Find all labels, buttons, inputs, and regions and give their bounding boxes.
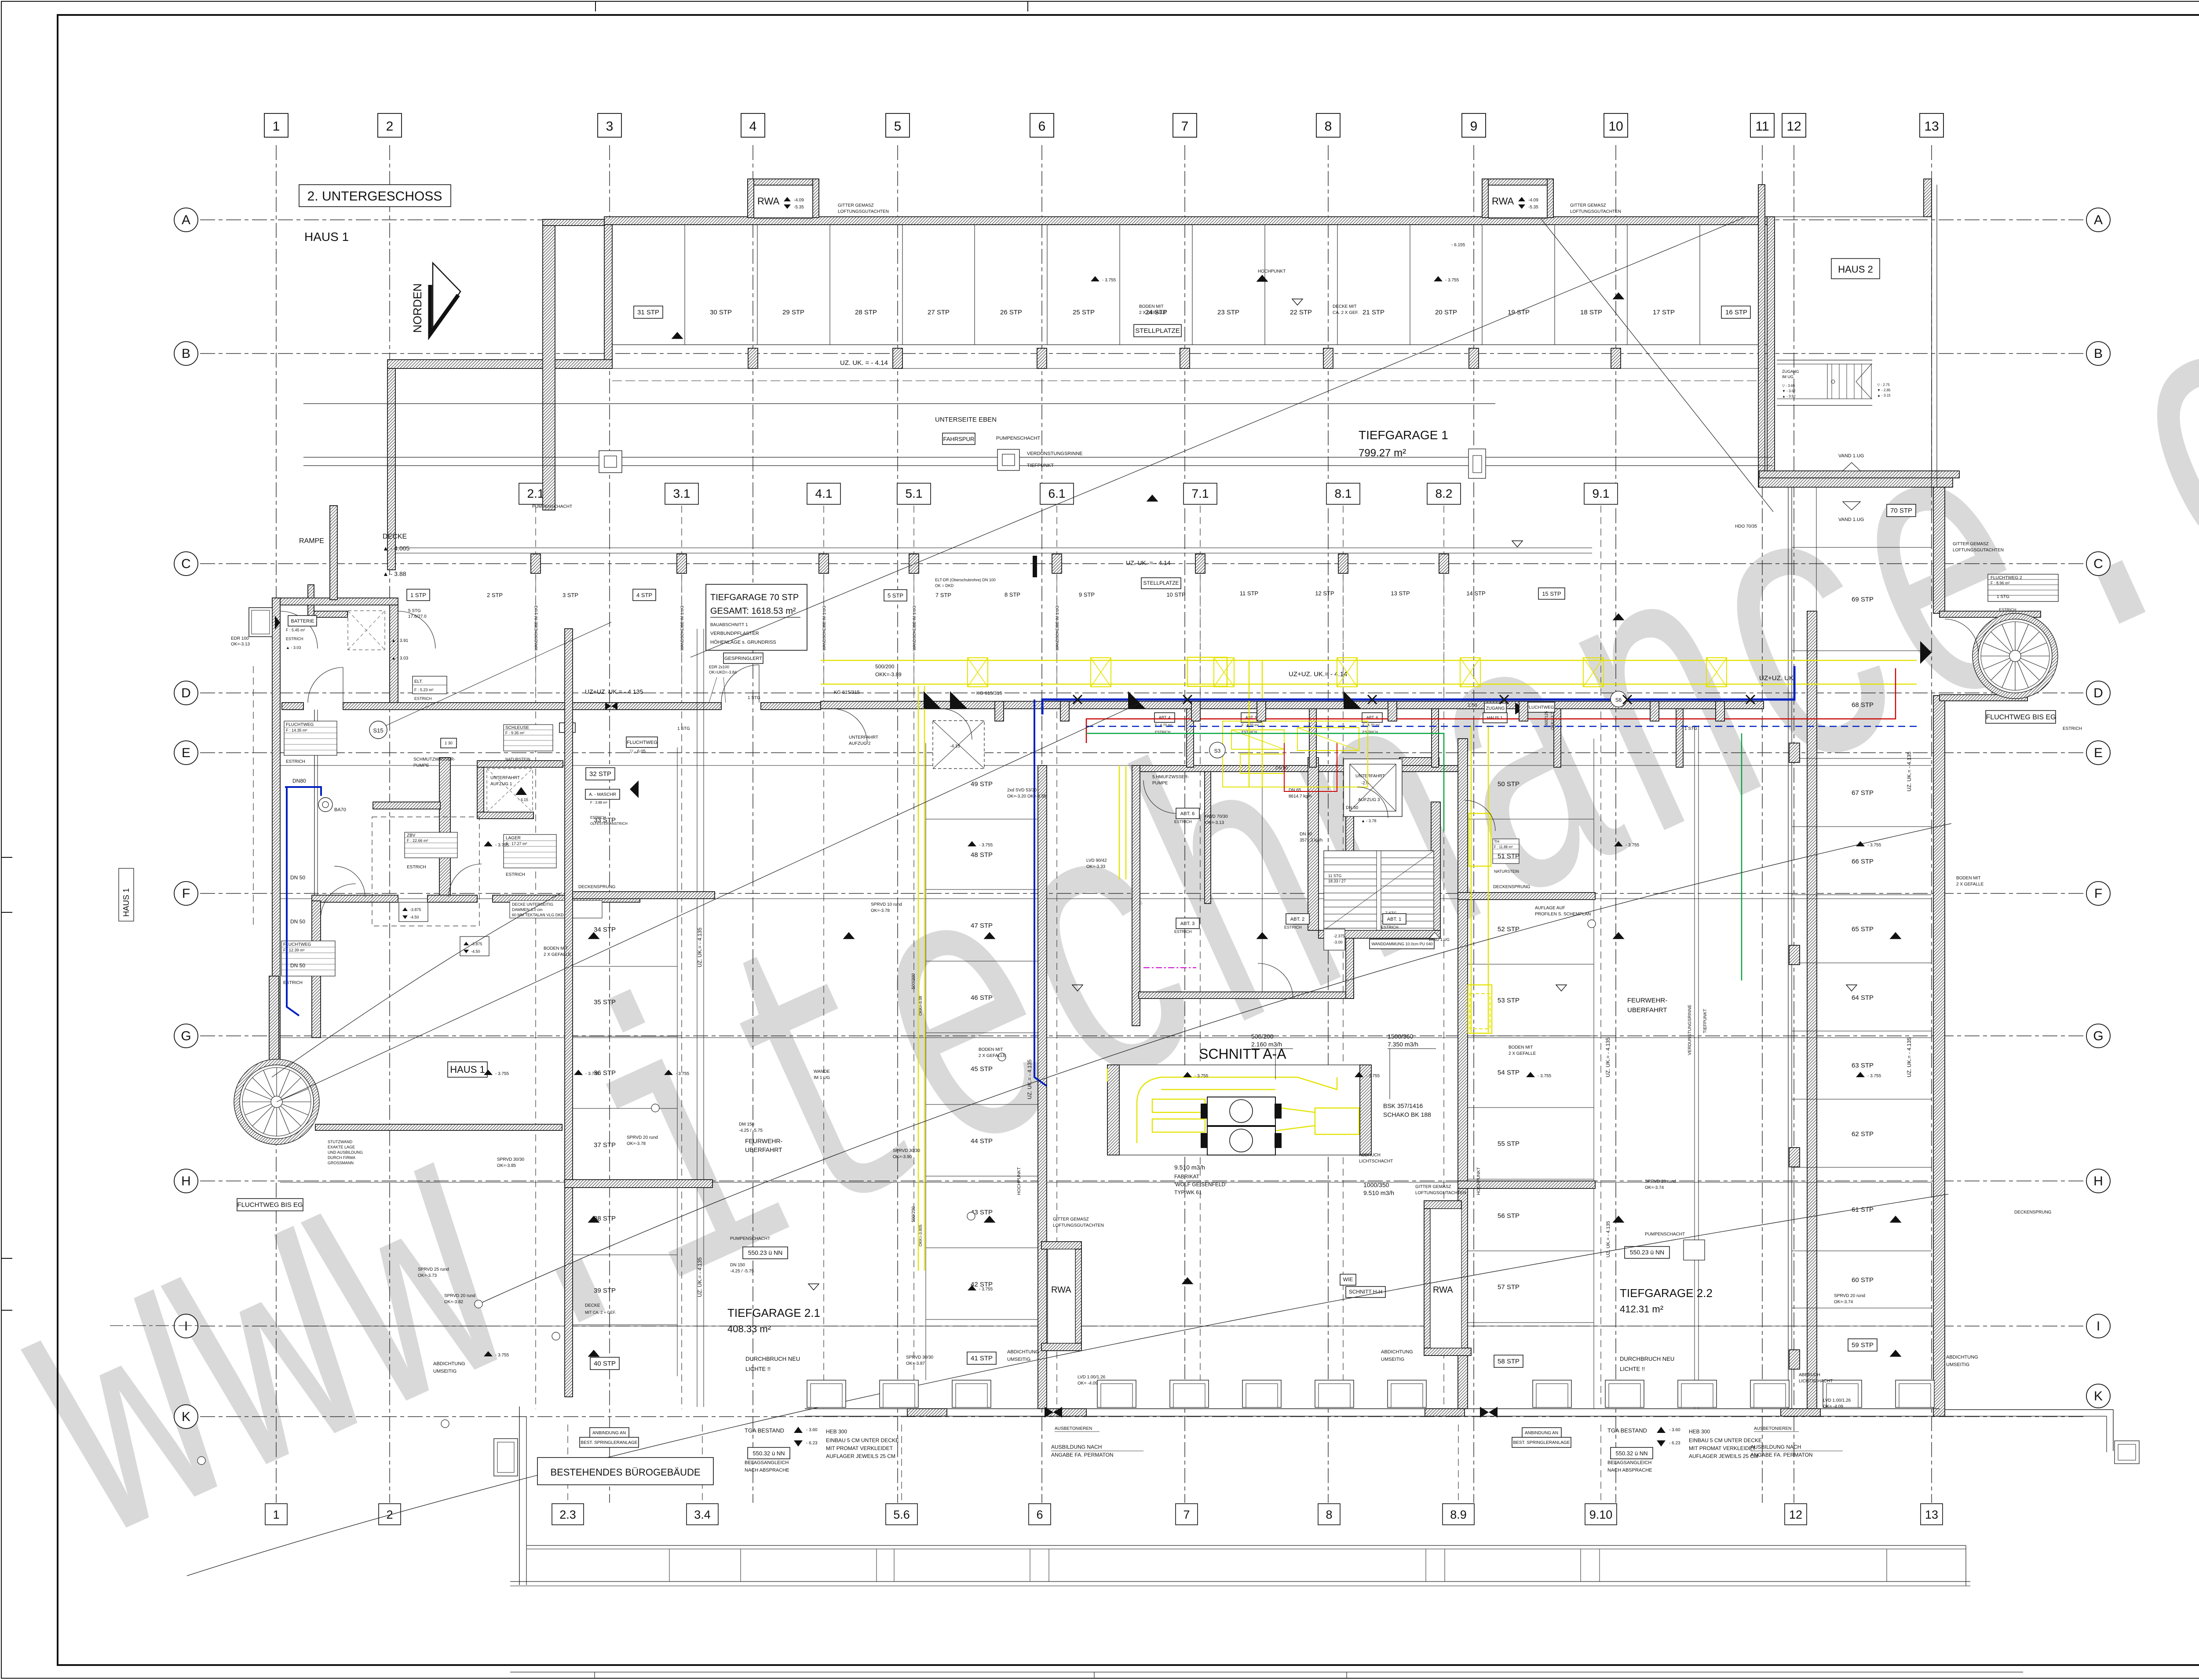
svg-text:OLFESTER ANSTRICH: OLFESTER ANSTRICH: [590, 822, 628, 826]
svg-text:500/200: 500/200: [911, 973, 916, 989]
svg-text:60 MM TEKTALAN VLG DKD: 60 MM TEKTALAN VLG DKD: [512, 913, 564, 917]
svg-text:35 STP: 35 STP: [594, 999, 616, 1006]
svg-text:8 STP: 8 STP: [1005, 591, 1020, 598]
svg-text:A. - MASCHR: A. - MASCHR: [589, 792, 616, 797]
svg-text:500/200: 500/200: [1251, 1033, 1274, 1040]
svg-text:FEURWEHR-: FEURWEHR-: [1627, 997, 1667, 1004]
svg-text:55 STP: 55 STP: [1498, 1140, 1520, 1148]
svg-text:NACH ABSPRACHE: NACH ABSPRACHE: [745, 1468, 789, 1473]
svg-text:HAUS 2: HAUS 2: [1838, 264, 1873, 275]
svg-text:BODEN MIT: BODEN MIT: [544, 946, 568, 951]
svg-text:550.32 ü NN: 550.32 ü NN: [1616, 1450, 1648, 1457]
svg-text:2.160 m3/h: 2.160 m3/h: [1251, 1041, 1282, 1048]
svg-text:3.1: 3.1: [673, 487, 690, 500]
svg-text:CA. 2 X GEF.: CA. 2 X GEF.: [1333, 310, 1359, 315]
svg-text:DECKE UNTERSEITIG: DECKE UNTERSEITIG: [512, 902, 553, 907]
svg-text:PUMPENSCHACHT: PUMPENSCHACHT: [1645, 1232, 1685, 1237]
svg-text:DURCHBRUCH NEU: DURCHBRUCH NEU: [745, 1356, 800, 1362]
svg-text:C: C: [2093, 557, 2103, 571]
svg-text:412.31 m²: 412.31 m²: [1620, 1304, 1663, 1315]
svg-text:1:50: 1:50: [1468, 703, 1477, 708]
svg-text:▲ - 3.03: ▲ - 3.03: [286, 645, 301, 650]
svg-text:B: B: [2094, 346, 2103, 361]
svg-text:58 STP: 58 STP: [1498, 1358, 1520, 1365]
svg-text:A: A: [2094, 213, 2103, 227]
svg-text:-4.25 / -5.75: -4.25 / -5.75: [730, 1269, 754, 1274]
svg-text:SCHLEUSE: SCHLEUSE: [505, 725, 529, 730]
svg-text:SCHNITT H-H: SCHNITT H-H: [1349, 1289, 1382, 1295]
svg-text:F : 8.96 m²: F : 8.96 m²: [1991, 581, 2010, 585]
svg-text:- 3.755: - 3.755: [1867, 843, 1881, 848]
svg-text:WANDSCHEIBE IM 1.UG: WANDSCHEIBE IM 1.UG: [912, 605, 917, 651]
svg-text:11: 11: [1755, 119, 1769, 134]
svg-text:F : 5.45 m²: F : 5.45 m²: [286, 628, 305, 632]
svg-text:4.1: 4.1: [815, 487, 833, 500]
svg-text:F : 17.27 m²: F : 17.27 m²: [506, 842, 527, 846]
svg-text:PUMPENSCHACHT: PUMPENSCHACHT: [730, 1236, 770, 1241]
svg-text:DN 50: DN 50: [1300, 832, 1312, 837]
svg-text:12 STP: 12 STP: [1315, 590, 1334, 597]
svg-text:DURCH FIRMA: DURCH FIRMA: [328, 1155, 355, 1160]
svg-text:DN 65: DN 65: [1289, 788, 1301, 793]
svg-text:44 STP: 44 STP: [971, 1137, 993, 1145]
svg-text:MIT PROMAT VERKLEIDET: MIT PROMAT VERKLEIDET: [1689, 1445, 1756, 1451]
svg-text:- 3.755: - 3.755: [1867, 1074, 1881, 1079]
svg-text:7: 7: [1181, 119, 1189, 134]
svg-text:9.1: 9.1: [1593, 487, 1610, 500]
svg-text:ANGABE FA. PERMATON: ANGABE FA. PERMATON: [1051, 1452, 1114, 1458]
svg-text:- 3.755: - 3.755: [979, 1287, 993, 1292]
svg-text:39 STP: 39 STP: [594, 1287, 616, 1294]
svg-text:6.1: 6.1: [1048, 487, 1066, 500]
svg-text:▲ - 3.92: ▲ - 3.92: [1782, 394, 1796, 398]
svg-text:UNTERFAHRT: UNTERFAHRT: [849, 735, 878, 740]
svg-text:ESTRICH: ESTRICH: [1174, 929, 1192, 934]
svg-text:-2.375: -2.375: [1333, 934, 1345, 938]
svg-text:UZ. UK.= - 4.135: UZ. UK.= - 4.135: [1026, 1059, 1033, 1099]
svg-text:RAMPE: RAMPE: [299, 537, 324, 545]
svg-text:ESTRICH: ESTRICH: [1284, 925, 1302, 929]
svg-text:1 30: 1 30: [445, 741, 453, 745]
svg-text:64 STP: 64 STP: [1852, 994, 1874, 1002]
svg-text:HAUS 1: HAUS 1: [122, 888, 131, 917]
svg-text:1 STG: 1 STG: [1684, 726, 1697, 731]
svg-text:OKK=-3.38: OKK=-3.38: [918, 996, 923, 1016]
svg-text:UZ. UK.= - 4.135: UZ. UK.= - 4.135: [697, 1257, 703, 1297]
svg-text:LOFTUNGSGUTACHTEN: LOFTUNGSGUTACHTEN: [1415, 1191, 1466, 1195]
svg-text:UNTERSEITE EBEN: UNTERSEITE EBEN: [935, 416, 997, 423]
svg-text:PUMPENSCHACHT: PUMPENSCHACHT: [532, 504, 572, 509]
svg-text:DAMMEN 3.0 cm: DAMMEN 3.0 cm: [512, 907, 543, 912]
svg-text:FLUCHTWEG: FLUCHTWEG: [286, 722, 314, 727]
svg-text:OK=UKD=-3.84: OK=UKD=-3.84: [709, 670, 737, 674]
svg-text:- 3.755: - 3.755: [495, 843, 509, 848]
svg-text:LICHTE !!: LICHTE !!: [1620, 1366, 1645, 1372]
svg-text:OK=-3.87: OK=-3.87: [906, 1361, 925, 1366]
svg-text:LOFTUNGSGUTACHTEN: LOFTUNGSGUTACHTEN: [838, 209, 889, 214]
svg-text:KG 615/315: KG 615/315: [976, 691, 1002, 696]
svg-text:3 STP: 3 STP: [563, 592, 578, 598]
svg-text:ESTRICH: ESTRICH: [414, 696, 432, 701]
svg-text:8.1: 8.1: [1335, 487, 1352, 500]
svg-text:DN80: DN80: [292, 778, 306, 784]
svg-text:B: B: [182, 346, 190, 361]
svg-text:OK=-3.78: OK=-3.78: [627, 1141, 646, 1146]
svg-text:DN 50: DN 50: [290, 918, 305, 925]
svg-text:UZ+UZ. UK.= - 4.14: UZ+UZ. UK.= - 4.14: [1289, 671, 1347, 678]
svg-text:SCHMUTZWASSER-: SCHMUTZWASSER-: [413, 757, 455, 762]
svg-text:OK=-3.90: OK=-3.90: [893, 1155, 912, 1159]
svg-text:3: 3: [606, 119, 614, 134]
svg-text:2. UNTERGESCHOSS: 2. UNTERGESCHOSS: [307, 189, 442, 204]
svg-text:FABRIKAT: FABRIKAT: [1174, 1173, 1200, 1180]
svg-text:S3: S3: [1214, 748, 1221, 754]
svg-text:F : 14.35 m²: F : 14.35 m²: [286, 728, 307, 732]
svg-text:21 STP: 21 STP: [1363, 309, 1384, 316]
svg-text:HÖHENLAGE s. GRUNDRISS: HÖHENLAGE s. GRUNDRISS: [710, 640, 776, 645]
svg-text:28 STP: 28 STP: [855, 309, 877, 316]
svg-text:SPRVD 20 rund: SPRVD 20 rund: [444, 1294, 475, 1298]
svg-text:OK = DKD: OK = DKD: [935, 583, 954, 588]
svg-text:- 3.60: - 3.60: [806, 1428, 818, 1432]
svg-text:TYP:WK 61: TYP:WK 61: [1174, 1189, 1202, 1195]
svg-text:8.2: 8.2: [1436, 487, 1453, 500]
svg-text:DECKENSPRUNG: DECKENSPRUNG: [578, 885, 616, 889]
svg-text:F : 9.35 m²: F : 9.35 m²: [505, 731, 525, 735]
svg-text:8.9: 8.9: [1450, 1508, 1467, 1521]
svg-text:▲ - 3.88: ▲ - 3.88: [383, 570, 406, 577]
svg-text:LVD 1.00/1.26: LVD 1.00/1.26: [1078, 1375, 1106, 1380]
svg-text:62 STP: 62 STP: [1852, 1130, 1874, 1138]
svg-text:PUMPE: PUMPE: [1152, 781, 1168, 786]
svg-text:GITTER GEMASZ: GITTER GEMASZ: [1953, 542, 1989, 547]
svg-text:BAUABSCHNITT 1: BAUABSCHNITT 1: [710, 623, 748, 627]
svg-text:PUMPENSCHACHT: PUMPENSCHACHT: [996, 436, 1041, 441]
svg-text:▼ - 2.85: ▼ - 2.85: [1877, 388, 1891, 392]
svg-text:- 3.755: - 3.755: [676, 1071, 690, 1076]
svg-text:-4.09: -4.09: [1528, 198, 1538, 203]
svg-text:EINBAU 5 CM UNTER DECKE: EINBAU 5 CM UNTER DECKE: [1689, 1437, 1762, 1443]
svg-text:20 STP: 20 STP: [1435, 309, 1457, 316]
svg-text:DURCHBRUCH NEU: DURCHBRUCH NEU: [1620, 1356, 1674, 1362]
svg-text:500/200: 500/200: [875, 663, 895, 670]
svg-text:7 STP: 7 STP: [935, 592, 951, 598]
svg-text:LOFTUNGSGUTACHTEN: LOFTUNGSGUTACHTEN: [1053, 1223, 1104, 1228]
svg-text:▽ - 6.05: ▽ - 6.05: [630, 749, 646, 754]
svg-text:5.1: 5.1: [906, 487, 923, 500]
svg-text:BODEN MIT: BODEN MIT: [1139, 304, 1164, 309]
svg-text:5.HMUFZWSSER-: 5.HMUFZWSSER-: [1152, 775, 1189, 780]
svg-text:OK=-3.73: OK=-3.73: [418, 1273, 437, 1278]
svg-text:MIT PROMAT VERKLEIDET: MIT PROMAT VERKLEIDET: [826, 1445, 893, 1451]
svg-text:-3.00: -3.00: [1333, 940, 1343, 944]
svg-text:5 STP: 5 STP: [888, 592, 903, 599]
svg-text:DECKE: DECKE: [383, 533, 407, 540]
svg-text:3.4: 3.4: [694, 1508, 711, 1521]
svg-text:63 STP: 63 STP: [1852, 1062, 1874, 1069]
svg-text:OK= -4.09: OK= -4.09: [1823, 1404, 1843, 1409]
svg-text:ESTRICH: ESTRICH: [407, 865, 426, 870]
svg-text:1: 1: [273, 119, 280, 134]
svg-text:6: 6: [1036, 1508, 1043, 1521]
svg-text:TIEFGARAGE 1: TIEFGARAGE 1: [1359, 428, 1448, 442]
svg-text:RWA: RWA: [1433, 1285, 1453, 1295]
svg-text:H: H: [181, 1174, 191, 1188]
svg-text:SCHAKO BK 188: SCHAKO BK 188: [1383, 1111, 1431, 1118]
svg-text:DN 50: DN 50: [1346, 805, 1359, 810]
svg-text:HEB 300: HEB 300: [826, 1429, 847, 1435]
svg-text:DECKE MIT: DECKE MIT: [1333, 304, 1356, 309]
svg-text:OK=-3.74: OK=-3.74: [1834, 1300, 1853, 1305]
svg-text:▼ - 3.62: ▼ - 3.62: [1782, 389, 1796, 393]
svg-text:▲ - 3.78: ▲ - 3.78: [1361, 819, 1376, 823]
svg-text:LOFTUNGSGUTACHTEN: LOFTUNGSGUTACHTEN: [1570, 209, 1621, 214]
svg-text:WANDSCHEIBE IM 1.UG: WANDSCHEIBE IM 1.UG: [680, 605, 684, 651]
svg-text:BELAGSANGLEICH: BELAGSANGLEICH: [745, 1460, 789, 1465]
svg-text:UMSEITIG: UMSEITIG: [433, 1369, 457, 1374]
svg-text:-4.15: -4.15: [950, 744, 960, 749]
svg-text:BESTEHENDES BÜROGEBÄUDE: BESTEHENDES BÜROGEBÄUDE: [550, 1467, 700, 1478]
svg-text:AUFZUG 3: AUFZUG 3: [1358, 798, 1380, 802]
svg-text:ZUGANG: ZUGANG: [1486, 706, 1505, 711]
svg-text:13 STP: 13 STP: [1391, 590, 1410, 597]
svg-text:ELT.: ELT.: [414, 679, 423, 684]
svg-text:22 STP: 22 STP: [1290, 309, 1312, 316]
svg-text:UBERFAHRT: UBERFAHRT: [1627, 1006, 1667, 1014]
svg-text:AUSBILDUNG NACH: AUSBILDUNG NACH: [1750, 1444, 1801, 1450]
svg-text:UNTERFAHRT: UNTERFAHRT: [1355, 774, 1385, 779]
svg-text:45 STP: 45 STP: [971, 1065, 993, 1073]
svg-text:UZ. UK. = - 4.14: UZ. UK. = - 4.14: [840, 359, 888, 367]
svg-text:MIT CA. 2 × GEF.: MIT CA. 2 × GEF.: [585, 1310, 616, 1315]
svg-text:-3.875: -3.875: [410, 907, 421, 912]
svg-text:9 STP: 9 STP: [1079, 591, 1095, 598]
svg-text:▲ - 3.03: ▲ - 3.03: [391, 656, 409, 661]
svg-text:FLUCHTWEG 2: FLUCHTWEG 2: [1991, 576, 2022, 580]
svg-text:- 3.755: - 3.755: [495, 1353, 509, 1358]
svg-text:799.27 m²: 799.27 m²: [1359, 447, 1406, 459]
svg-text:GROSSMANN: GROSSMANN: [328, 1161, 354, 1165]
svg-text:3571.3 kg/h: 3571.3 kg/h: [1300, 838, 1322, 843]
svg-text:GITTER GEMASZ: GITTER GEMASZ: [1053, 1217, 1089, 1222]
svg-text:1: 1: [273, 1508, 279, 1521]
svg-text:- 6.23: - 6.23: [1669, 1441, 1680, 1446]
svg-text:AUSBETONIEREN: AUSBETONIEREN: [1055, 1426, 1092, 1431]
svg-text:-4.25 / -5.75: -4.25 / -5.75: [739, 1128, 763, 1133]
svg-text:G: G: [181, 1029, 191, 1043]
svg-text:F : 11.88 m²: F : 11.88 m²: [1494, 845, 1513, 849]
svg-text:ABDICHTUNG: ABDICHTUNG: [1007, 1349, 1039, 1355]
svg-text:BODEN MIT: BODEN MIT: [979, 1047, 1003, 1052]
svg-text:13: 13: [1924, 119, 1939, 134]
svg-text:EDR 2x100: EDR 2x100: [709, 665, 729, 669]
svg-text:UZ. UK.= - 4.135: UZ. UK.= - 4.135: [1605, 1037, 1611, 1077]
svg-text:HOCHPUNKT: HOCHPUNKT: [1476, 1167, 1481, 1195]
svg-text:UZ. UK.= - 4.135: UZ. UK.= - 4.135: [697, 927, 703, 967]
svg-text:ABDICHTUNG: ABDICHTUNG: [1381, 1349, 1413, 1355]
svg-text:12: 12: [1786, 119, 1801, 134]
svg-text:▽ - 3.69: ▽ - 3.69: [1782, 384, 1795, 388]
svg-text:550.32 ü NN: 550.32 ü NN: [753, 1450, 785, 1457]
svg-text:49 STP: 49 STP: [971, 780, 993, 788]
svg-text:E: E: [2094, 746, 2103, 760]
svg-text:ANGABE FA. PERMATON: ANGABE FA. PERMATON: [1750, 1452, 1813, 1458]
svg-text:ABDICHTUNG: ABDICHTUNG: [1946, 1355, 1978, 1360]
svg-text:GITTER GEMASZ: GITTER GEMASZ: [1415, 1184, 1451, 1189]
svg-text:68 STP: 68 STP: [1852, 701, 1874, 709]
svg-text:10: 10: [1608, 119, 1623, 134]
svg-text:65 STP: 65 STP: [1852, 926, 1874, 933]
svg-text:18.33 / 27: 18.33 / 27: [1328, 879, 1346, 883]
svg-text:23 STP: 23 STP: [1217, 309, 1239, 316]
svg-text:WANDE: WANDE: [814, 1069, 830, 1074]
svg-text:UZ. UK.= - 4.135: UZ. UK.= - 4.135: [1906, 751, 1912, 791]
svg-text:I: I: [2097, 1319, 2100, 1334]
svg-text:- 3.755: - 3.755: [1538, 1074, 1552, 1079]
svg-text:BEST. SPRINGLERANLAGE: BEST. SPRINGLERANLAGE: [1513, 1440, 1570, 1445]
svg-text:2 X GEFALLE: 2 X GEFALLE: [1509, 1051, 1536, 1056]
svg-text:41 STP: 41 STP: [971, 1355, 993, 1362]
svg-text:- 3.755: - 3.755: [1194, 1074, 1209, 1079]
svg-text:13: 13: [1925, 1508, 1938, 1521]
svg-text:2: 2: [386, 119, 394, 134]
svg-text:2 X GEFALLE: 2 X GEFALLE: [544, 952, 571, 957]
svg-text:OKK=-3.7: OKK=-3.7: [1550, 712, 1555, 730]
svg-text:AUFLAGER JEWEILS 25 CM: AUFLAGER JEWEILS 25 CM: [826, 1453, 895, 1459]
svg-text:WIE: WIE: [1343, 1276, 1353, 1283]
svg-text:14 STP: 14 STP: [1466, 590, 1485, 597]
svg-text:DECKENSPRUNG: DECKENSPRUNG: [1493, 885, 1531, 889]
svg-text:F : 22.66 m²: F : 22.66 m²: [407, 838, 428, 843]
svg-text:61 STP: 61 STP: [1852, 1206, 1874, 1214]
svg-text:25 STP: 25 STP: [1073, 309, 1095, 316]
svg-text:8614.7 kg/h: 8614.7 kg/h: [1289, 794, 1311, 799]
svg-text:DN 150: DN 150: [730, 1263, 745, 1268]
svg-text:- 3.755: - 3.755: [1102, 278, 1116, 283]
svg-text:1 STP: 1 STP: [410, 592, 426, 598]
svg-text:26 STP: 26 STP: [1000, 309, 1022, 316]
svg-text:- 3.60: - 3.60: [1669, 1428, 1680, 1432]
svg-text:67 STP: 67 STP: [1852, 789, 1874, 797]
svg-text:PUMPE: PUMPE: [413, 763, 429, 768]
svg-text:HOCHPUNKT: HOCHPUNKT: [1017, 1167, 1022, 1195]
svg-text:WANDSCHEIBE IM 1.UG: WANDSCHEIBE IM 1.UG: [822, 605, 826, 651]
svg-text:-4.09: -4.09: [794, 198, 804, 203]
svg-text:ABT. 3: ABT. 3: [1180, 921, 1194, 926]
svg-text:STELLPLATZE: STELLPLATZE: [1135, 327, 1180, 335]
svg-text:1 STG: 1 STG: [1997, 594, 2009, 599]
svg-text:OK=-3.74: OK=-3.74: [1645, 1185, 1664, 1190]
svg-text:-5.35: -5.35: [794, 205, 804, 210]
svg-text:OKK=-3.805: OKK=-3.805: [918, 1224, 923, 1246]
svg-text:HDO 70/35: HDO 70/35: [1735, 524, 1757, 529]
svg-text:9.510 m3/h: 9.510 m3/h: [1174, 1164, 1205, 1171]
svg-text:UND AUSBILDUNG: UND AUSBILDUNG: [328, 1150, 363, 1155]
svg-text:AUFLAGE AUF: AUFLAGE AUF: [1535, 906, 1565, 911]
svg-text:▽ - 2.75: ▽ - 2.75: [1877, 383, 1890, 387]
svg-text:DECKE: DECKE: [585, 1303, 600, 1308]
svg-text:GESAMT: 1618.53 m²: GESAMT: 1618.53 m²: [710, 606, 796, 616]
svg-text:SPRVD 30/30: SPRVD 30/30: [893, 1148, 921, 1153]
svg-text:2xd SVD 53/30: 2xd SVD 53/30: [1007, 788, 1037, 793]
svg-text:550.23 ü NN: 550.23 ü NN: [748, 1249, 783, 1256]
svg-text:IM UG: IM UG: [1782, 375, 1794, 379]
svg-text:1 STG: 1 STG: [677, 726, 690, 731]
svg-text:- 3.755: - 3.755: [585, 1071, 599, 1076]
svg-text:ANBINDUNG AN: ANBINDUNG AN: [592, 1431, 626, 1436]
svg-text:RWA: RWA: [1492, 196, 1514, 207]
svg-text:E: E: [182, 746, 190, 760]
svg-text:LOFTUNGSGUTACHTEN: LOFTUNGSGUTACHTEN: [1953, 548, 2004, 553]
svg-text:- 4.15: - 4.15: [518, 798, 528, 802]
svg-text:- 3.755: - 3.755: [1445, 278, 1459, 283]
svg-text:SPRVD 10 rund: SPRVD 10 rund: [871, 902, 902, 907]
svg-text:DN 50: DN 50: [290, 875, 305, 881]
svg-text:STELLPLATZE: STELLPLATZE: [1143, 580, 1179, 586]
svg-text:BATTERIE: BATTERIE: [291, 619, 314, 624]
svg-text:FAHRSPUR: FAHRSPUR: [943, 436, 975, 442]
svg-text:TIEFGARAGE 2.1: TIEFGARAGE 2.1: [727, 1306, 820, 1319]
svg-text:TIEFGARAGE 2.2: TIEFGARAGE 2.2: [1620, 1286, 1713, 1300]
svg-text:SPRVD 30/30: SPRVD 30/30: [906, 1355, 934, 1360]
svg-text:ABBRUCH: ABBRUCH: [1359, 1153, 1381, 1158]
svg-text:SPRVD 20 rund: SPRVD 20 rund: [627, 1135, 658, 1140]
svg-text:TGA BESTAND: TGA BESTAND: [745, 1427, 784, 1434]
svg-text:BSK 357/1416: BSK 357/1416: [1383, 1102, 1423, 1109]
svg-text:H: H: [2093, 1174, 2103, 1188]
svg-text:ESTRICH: ESTRICH: [506, 872, 525, 877]
svg-text:UZ. UK.= - 4.135: UZ. UK.= - 4.135: [1606, 1221, 1611, 1257]
svg-text:LVD 90/42: LVD 90/42: [1086, 858, 1107, 863]
svg-text:HEB 300: HEB 300: [1689, 1429, 1710, 1435]
svg-text:VAND 1.UG: VAND 1.UG: [1838, 453, 1864, 459]
svg-text:ESTRICH: ESTRICH: [286, 759, 305, 764]
svg-text:HAUS 1.: HAUS 1.: [1487, 716, 1504, 721]
svg-text:OK=-3.13: OK=-3.13: [231, 642, 250, 647]
svg-text:-5.35: -5.35: [1528, 205, 1538, 210]
svg-text:7.1: 7.1: [1192, 487, 1209, 500]
svg-text:VAND 1.UG: VAND 1.UG: [1838, 517, 1864, 522]
svg-text:70 STP: 70 STP: [1890, 507, 1912, 514]
svg-text:EXAKTE LAGE: EXAKTE LAGE: [328, 1145, 355, 1149]
svg-text:TH: TH: [1494, 839, 1499, 844]
svg-text:5 STG: 5 STG: [408, 609, 421, 613]
svg-text:K: K: [2094, 1389, 2103, 1403]
svg-text:DN 80: DN 80: [1275, 766, 1288, 771]
svg-text:GITTER GEMASZ: GITTER GEMASZ: [838, 203, 874, 208]
svg-text:WANDSCHEIBE IM 1.UG: WANDSCHEIBE IM 1.UG: [534, 605, 538, 651]
svg-text:ESTRICH: ESTRICH: [590, 816, 606, 820]
svg-text:I: I: [184, 1319, 188, 1334]
svg-text:GESPRINGLERT: GESPRINGLERT: [724, 656, 762, 661]
svg-text:AUSBILDUNG NACH: AUSBILDUNG NACH: [1051, 1444, 1102, 1450]
svg-text:29 STP: 29 STP: [782, 309, 804, 316]
svg-text:ANBINDUNG AN: ANBINDUNG AN: [1525, 1431, 1558, 1436]
svg-text:-4.50: -4.50: [471, 949, 480, 954]
svg-text:VERDUNSTUNGSRINNE: VERDUNSTUNGSRINNE: [1688, 1005, 1692, 1055]
svg-text:UBERFAHRT: UBERFAHRT: [745, 1146, 782, 1153]
svg-text:SPRVD 30/30: SPRVD 30/30: [497, 1157, 525, 1162]
svg-text:31 STP: 31 STP: [637, 309, 659, 316]
svg-text:EINBAU 5 CM UNTER DECKE: EINBAU 5 CM UNTER DECKE: [826, 1437, 899, 1443]
svg-text:5.6: 5.6: [893, 1508, 910, 1521]
svg-text:OK=-3.13: OK=-3.13: [1205, 820, 1224, 825]
svg-text:50 STP: 50 STP: [1498, 780, 1520, 788]
svg-text:ZUGANG: ZUGANG: [1782, 369, 1799, 374]
svg-text:BEST. SPRINGLERANLAGE: BEST. SPRINGLERANLAGE: [581, 1440, 638, 1445]
svg-text:LAGER: LAGER: [506, 836, 521, 841]
svg-text:-4.50: -4.50: [410, 915, 419, 919]
